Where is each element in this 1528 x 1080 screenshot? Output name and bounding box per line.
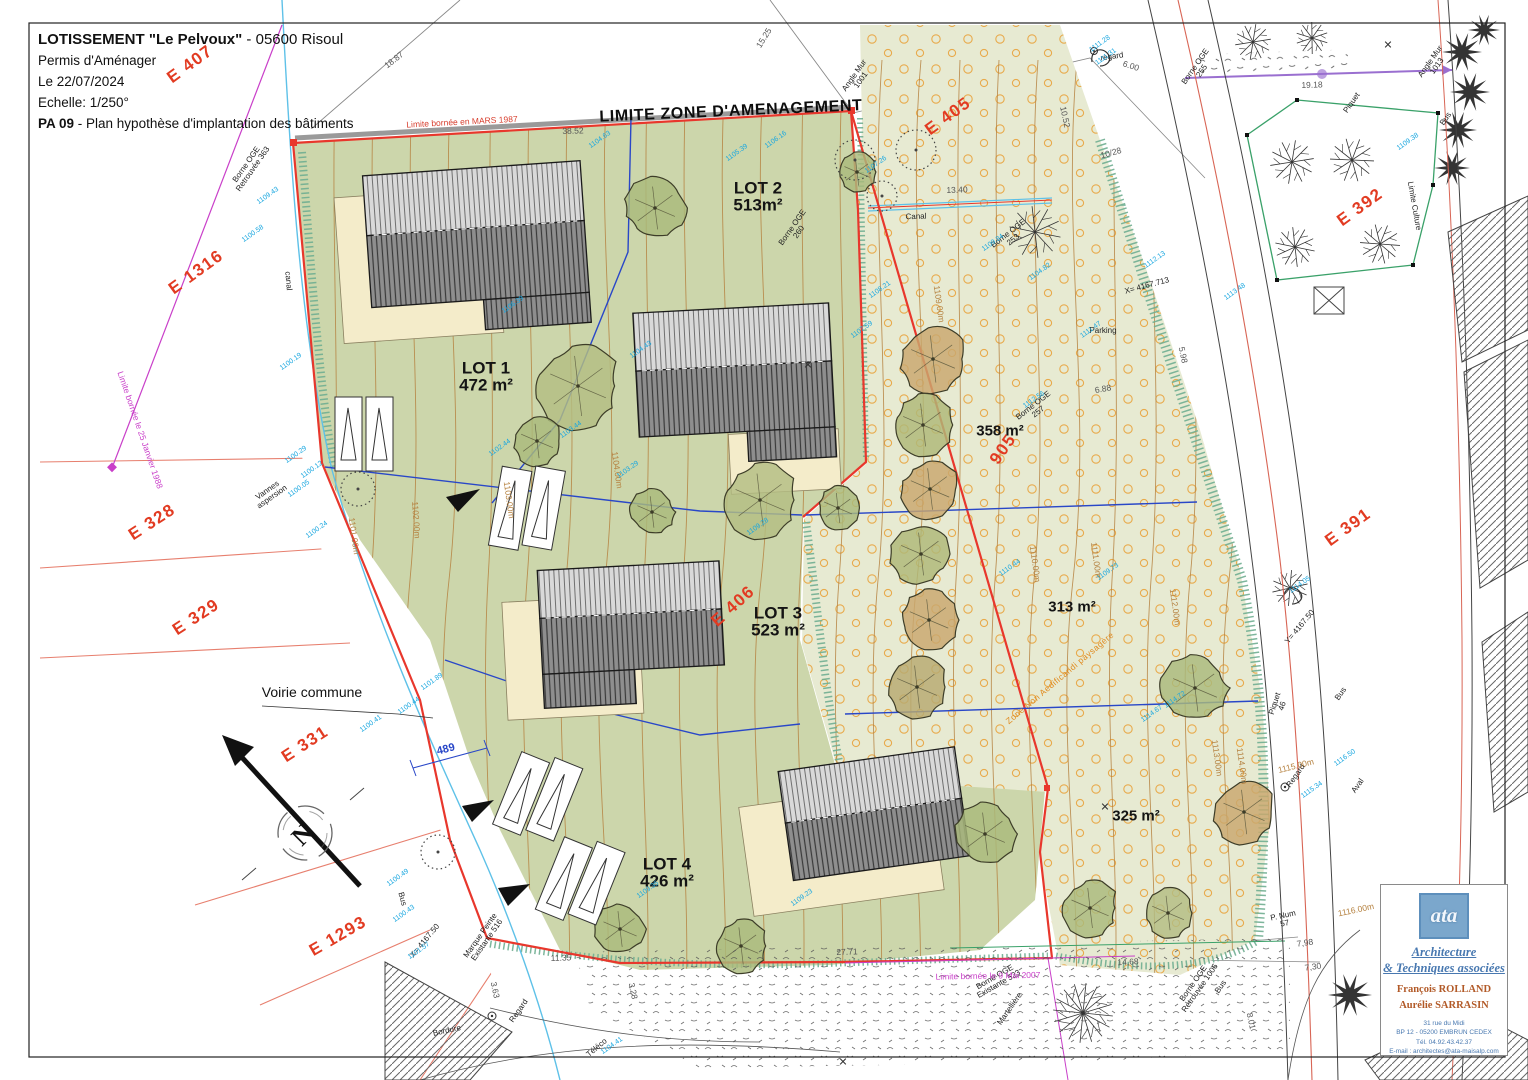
plan-reference: PA 09 - Plan hypothèse d'implantation de… [38, 114, 354, 135]
plan-drawing [0, 0, 1528, 1080]
culture-limit-polygon [1245, 98, 1440, 282]
project-name: LOTISSEMENT "Le Pelvoux" [38, 31, 242, 48]
address-line-3: Tél. 04.92.43.42.37 [1381, 1038, 1507, 1047]
address-line-4: E-mail : architectes@ata-maisalp.com [1381, 1047, 1507, 1056]
hedge-stipple-row [1200, 49, 1349, 74]
plan-description: - Plan hypothèse d'implantation des bâti… [74, 116, 354, 131]
title-block: LOTISSEMENT "Le Pelvoux" - 05600 Risoul … [38, 28, 354, 135]
studio-name-1: Architecture [1381, 945, 1507, 961]
address-line-1: 31 rue du Midi [1381, 1019, 1507, 1028]
plan-title: LOTISSEMENT "Le Pelvoux" - 05600 Risoul [38, 28, 354, 51]
permit-type: Permis d'Aménager [38, 51, 354, 72]
building-lot1 [333, 161, 592, 344]
architect-stamp: ata Architecture & Techniques associées … [1380, 884, 1508, 1056]
architect-1: François ROLLAND [1381, 982, 1507, 998]
plan-scale: Echelle: 1/250° [38, 93, 354, 114]
studio-name-2: & Techniques associées [1381, 961, 1507, 977]
stamp-address: 31 rue du Midi BP 12 - 05200 EMBRUN CEDE… [1381, 1019, 1507, 1057]
ata-logo: ata [1419, 893, 1469, 939]
plan-date: Le 22/07/2024 [38, 72, 354, 93]
north-arrow [222, 735, 364, 886]
architect-2: Aurélie SARRASIN [1381, 998, 1507, 1014]
project-location: - 05600 Risoul [242, 31, 343, 48]
address-line-2: BP 12 - 05200 EMBRUN CEDEX [1381, 1028, 1507, 1037]
plan-code: PA 09 [38, 116, 74, 131]
scrub-ground [575, 938, 1290, 1068]
site-plan-sheet: E 407E 405E 392E 1316E 328E 329E 331E 12… [0, 0, 1528, 1080]
